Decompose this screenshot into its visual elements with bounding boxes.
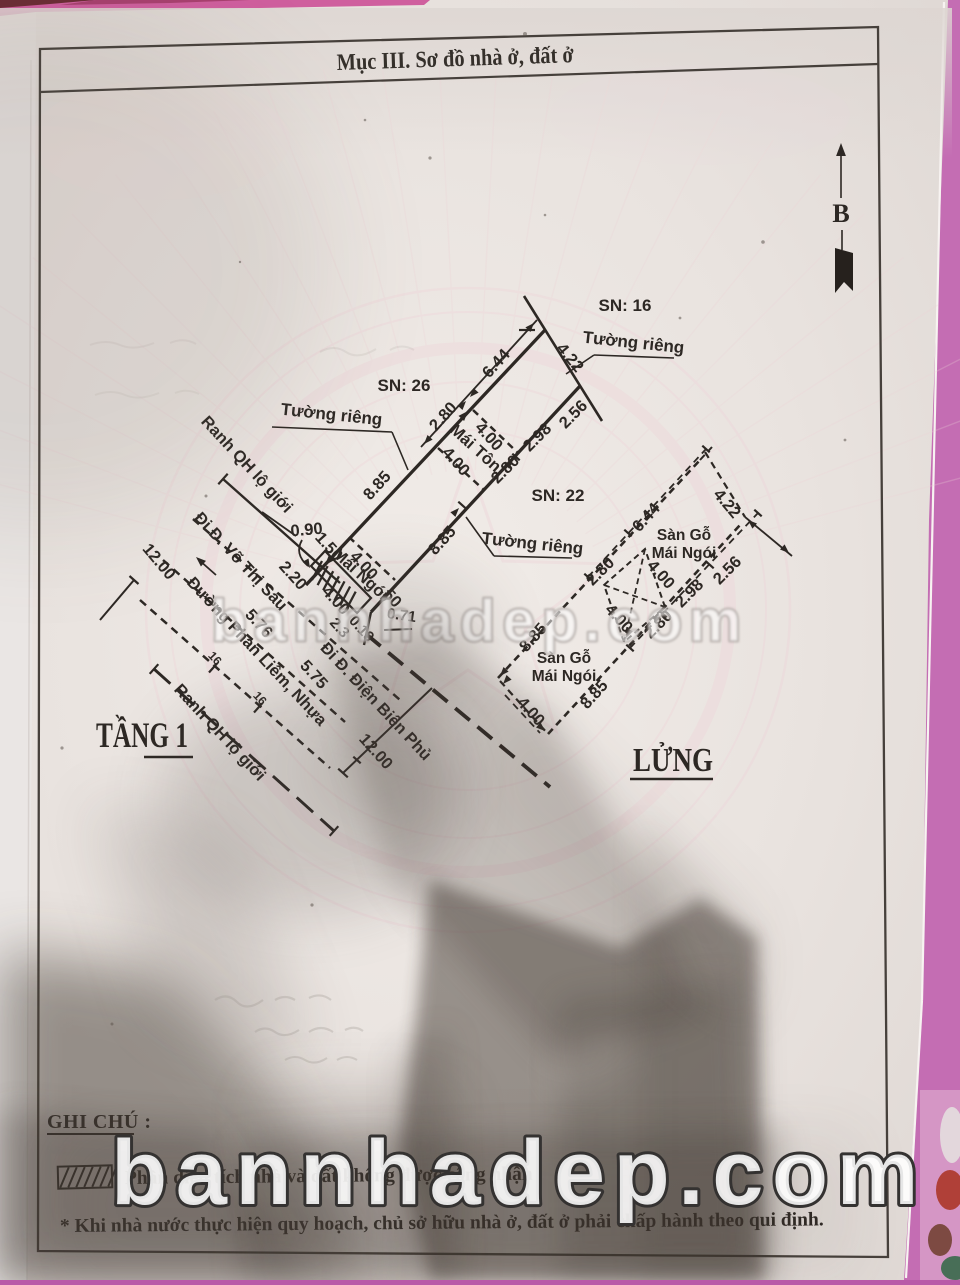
- svg-text:Mái Ngói: Mái Ngói: [532, 668, 597, 685]
- svg-text:TẦNG 1: TẦNG 1: [96, 715, 188, 755]
- svg-text:bannhadep.com: bannhadep.com: [111, 1122, 927, 1224]
- svg-text:SN: 22: SN: 22: [532, 486, 585, 505]
- svg-text:B: B: [832, 199, 849, 228]
- svg-text:Sàn Gỗ: Sàn Gỗ: [657, 527, 711, 544]
- svg-text:SN: 26: SN: 26: [378, 376, 431, 395]
- svg-text:Mái Ngói: Mái Ngói: [652, 545, 717, 562]
- svg-text:SN: 16: SN: 16: [599, 296, 652, 315]
- svg-text:LỬNG: LỬNG: [633, 741, 713, 779]
